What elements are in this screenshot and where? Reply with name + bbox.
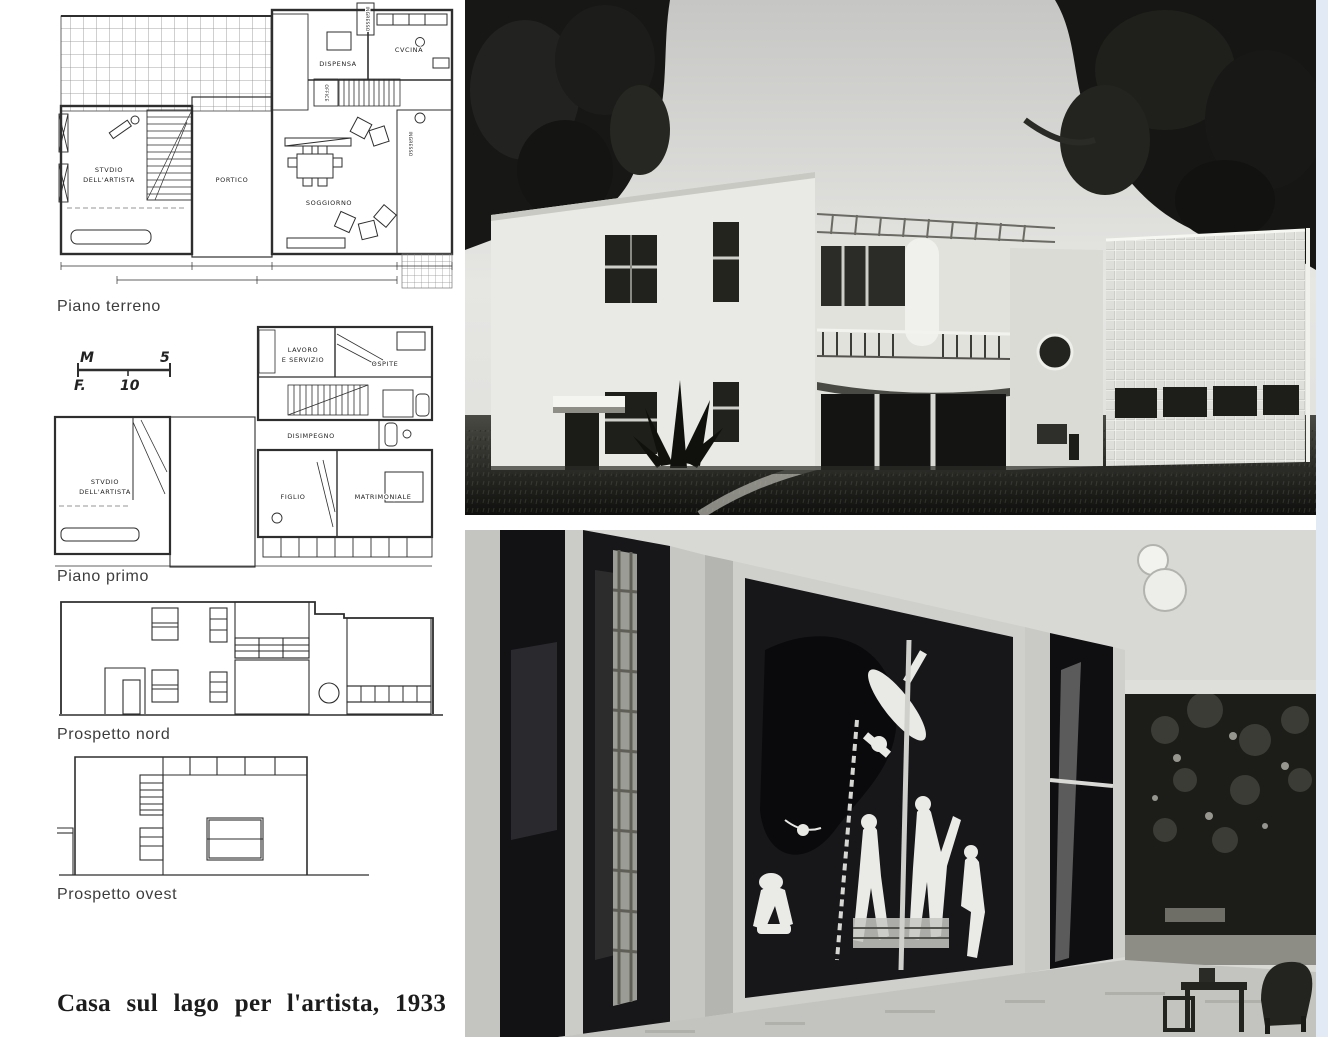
upper-stairs [288, 385, 368, 415]
guest-bed [397, 332, 425, 350]
glass-reflection [511, 642, 557, 840]
dining-set [288, 146, 342, 186]
book-page: STVDIO DELL'ARTISTA PORTICO INGRESSO [0, 0, 1328, 1037]
plaid-curtain [613, 550, 637, 1006]
glass-block-elevation [347, 618, 431, 714]
sofa [287, 238, 345, 248]
studio-block: STVDIO DELL'ARTISTA [59, 106, 192, 254]
caption-ground-floor: Piano terreno [57, 298, 161, 316]
room-label-ingresso-main: INGRESSO [407, 131, 413, 156]
west-elevation-drawing [57, 753, 375, 879]
bathtub [416, 394, 429, 416]
balcony-planters [263, 537, 432, 557]
room-label-portico: PORTICO [216, 176, 249, 184]
house-right-volume [1010, 248, 1103, 470]
armchairs [334, 117, 396, 240]
main-stairs [339, 79, 400, 106]
table-top [1181, 982, 1247, 990]
room-label-studio-up2: DELL'ARTISTA [79, 488, 131, 496]
exterior-photo [465, 0, 1316, 515]
first-floor-plan: LAVORO E SERVIZIO OSPITE DISIMPEGNO [45, 322, 445, 570]
room-label-studio2: DELL'ARTISTA [83, 176, 135, 184]
terrace-photo [465, 530, 1316, 1037]
couch [71, 230, 151, 244]
upper-glazing [821, 246, 905, 306]
bench [1037, 424, 1067, 444]
room-label-office: OFFICE [323, 84, 329, 101]
room-label-matrimoniale: MATRIMONIALE [355, 493, 412, 501]
service-guest-block: LAVORO E SERVIZIO OSPITE [258, 327, 432, 420]
caption-west-elevation: Prospetto ovest [57, 886, 177, 904]
room-label-cucina: CVCINA [395, 46, 423, 54]
clear-window-band [1115, 385, 1299, 418]
pantry-table [327, 32, 351, 50]
portico-area: PORTICO [192, 97, 272, 257]
room-label-ospite: OSPITE [372, 360, 399, 368]
garden-view [1125, 680, 1316, 965]
room-label-dispensa: DISPENSA [319, 60, 356, 68]
living-block: INGRESSO OFFICE [272, 3, 452, 288]
bath-hatch [383, 390, 413, 417]
glass-block-wall [1106, 228, 1308, 466]
room-label-soggiorno: SOGGIORNO [306, 199, 352, 207]
corridor: DISIMPEGNO [258, 420, 432, 450]
dimension-lines [61, 262, 452, 284]
porthole-window [1038, 335, 1072, 369]
roof-terrace-grid [170, 417, 255, 567]
scan-edge-artifact [1316, 0, 1328, 1037]
room-label-studio-up: STVDIO [91, 478, 119, 486]
mural [733, 561, 1025, 1013]
table-object [1199, 968, 1215, 982]
east-terrace-grid [397, 110, 452, 254]
ground-floor-plan: STVDIO DELL'ARTISTA PORTICO INGRESSO [57, 2, 455, 294]
room-label-lavoro2: E SERVIZIO [282, 356, 324, 364]
entry-door [565, 413, 599, 470]
storage-hatch [272, 14, 308, 110]
room-label-ingresso-service: INGRESSO [364, 6, 370, 31]
glazed-wall [465, 530, 733, 1037]
sideboard [285, 138, 351, 146]
north-elevation-drawing [57, 598, 445, 720]
bedrooms-block: FIGLIO MATRIMONIALE [258, 450, 432, 557]
caption-first-floor: Piano primo [57, 568, 149, 586]
cylindrical-column [905, 238, 939, 346]
room-label-disimpegno: DISIMPEGNO [287, 432, 335, 440]
room-label-studio: STVDIO [95, 166, 123, 174]
easel [109, 120, 131, 138]
page-title: Casa sul lago per l'artista, 1933 [57, 990, 446, 1018]
room-label-figlio: FIGLIO [281, 493, 306, 501]
ground-opening [821, 394, 1006, 470]
caption-north-elevation: Prospetto nord [57, 726, 170, 744]
kitchen-counter [377, 14, 449, 68]
room-label-lavoro: LAVORO [288, 346, 318, 354]
corner-glazing [1025, 627, 1125, 973]
studio-upper-block: STVDIO DELL'ARTISTA [55, 417, 170, 554]
entry-canopy [553, 396, 625, 407]
